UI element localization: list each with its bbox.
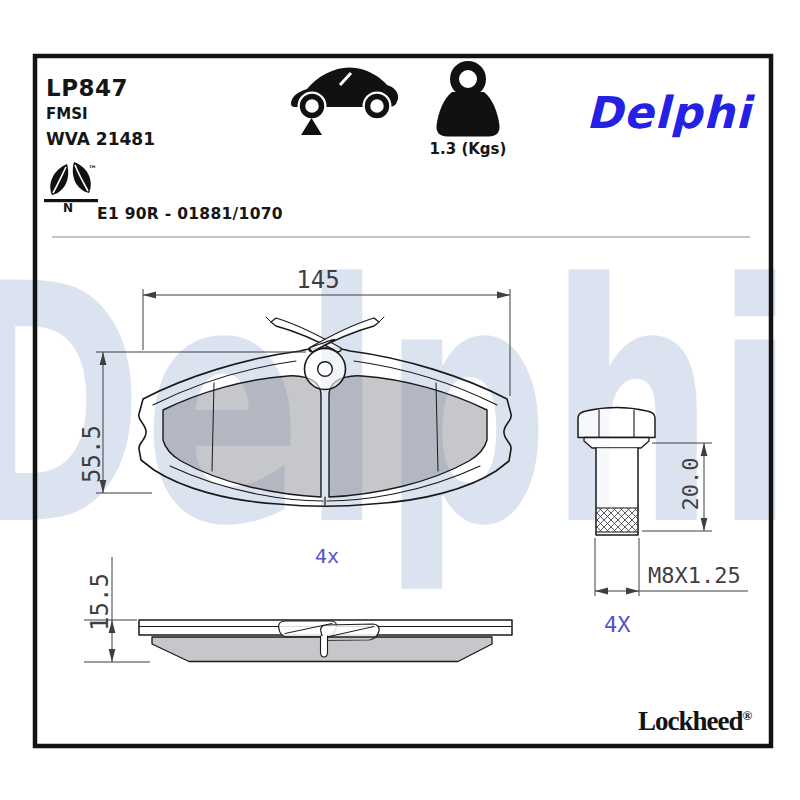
- bolt-quantity-label: 4X: [604, 612, 631, 637]
- weight-icon: [428, 58, 508, 142]
- datasheet-page: Delphi: [0, 0, 800, 800]
- lockheed-logo: Lockheed®: [638, 706, 751, 737]
- delphi-logo: Delphi: [586, 90, 751, 136]
- spring-clip-right-arm: [309, 318, 379, 352]
- dim-height-label: 55.5: [78, 422, 106, 486]
- front-axle-marker: [301, 118, 322, 135]
- pivot-hole: [318, 362, 333, 377]
- fmsi-label: FMSI: [46, 105, 88, 123]
- part-number: LP847: [46, 75, 128, 101]
- dim-width-label: 145: [293, 266, 343, 294]
- lockheed-wordmark: Lockheed: [638, 706, 743, 736]
- spring-clip-left-arm: [271, 318, 341, 352]
- car-icon: [288, 60, 402, 140]
- dim-thickness-label: 15.5: [86, 570, 114, 634]
- pad-front-view: [139, 317, 512, 506]
- bolt-flange: [584, 438, 649, 449]
- bolt-thread-label: M8X1.25: [648, 563, 741, 588]
- eco-leaf-icon: [43, 160, 99, 216]
- dim-bolt-length-label: 20.0: [678, 454, 703, 514]
- bolt-drawing: [578, 408, 655, 536]
- registered-mark: ®: [743, 708, 752, 723]
- wva-code: WVA 21481: [46, 129, 155, 149]
- pad-quantity-label: 4x: [315, 544, 339, 568]
- friction-left: [163, 376, 321, 497]
- pad-side-view: [139, 620, 512, 662]
- weight-value: 1.3 (Kgs): [420, 140, 516, 158]
- approval-code: E1 90R - 01881/1070: [97, 205, 283, 223]
- friction-right: [329, 376, 487, 497]
- bolt-head: [578, 408, 655, 438]
- side-slot: [321, 636, 328, 657]
